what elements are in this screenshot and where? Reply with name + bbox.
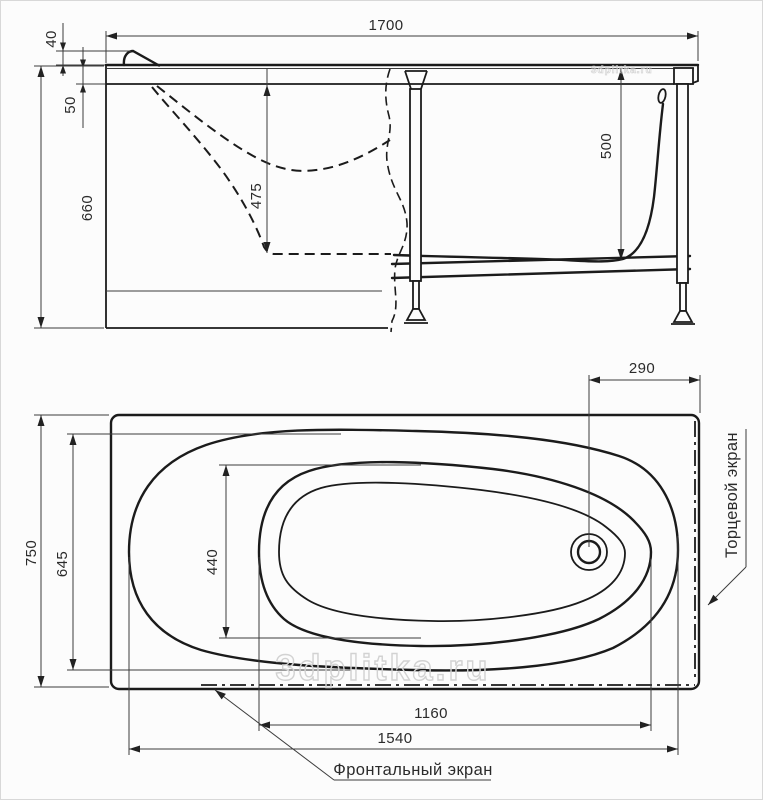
dim-height-total: 660 bbox=[79, 195, 96, 221]
dim-rim-height: 50 bbox=[62, 96, 79, 114]
dim-depth-end: 500 bbox=[598, 133, 615, 159]
dim-width-bottom: 440 bbox=[204, 549, 221, 575]
dim-depth-front: 475 bbox=[248, 183, 265, 209]
watermark-small: 3dplitka.ru bbox=[591, 65, 653, 76]
hidden-rim-curve-dashed bbox=[157, 86, 390, 171]
right-leg-bracket bbox=[674, 68, 693, 84]
dim-length-total: 1700 bbox=[369, 17, 404, 34]
dim-width-total: 750 bbox=[23, 540, 40, 566]
dim-length-bottom: 1160 bbox=[414, 705, 448, 722]
right-leg bbox=[671, 84, 695, 324]
screen-labels: Фронтальный экран Торцевой экран bbox=[215, 429, 746, 780]
hidden-bowl-wall-dashed bbox=[152, 87, 391, 254]
bathtub-technical-drawing: 1700 40 50 660 475 500 bbox=[0, 0, 763, 800]
dim-width-rim: 645 bbox=[54, 551, 71, 577]
drawing-svg: 1700 40 50 660 475 500 bbox=[1, 1, 763, 801]
dim-drain-to-edge: 290 bbox=[629, 360, 655, 377]
plan-view: 290 750 645 440 1160 1540 bbox=[23, 360, 746, 780]
headrest-profile bbox=[124, 51, 159, 66]
front-screen-label: Фронтальный экран bbox=[333, 761, 492, 779]
dim-headrest-height: 40 bbox=[43, 30, 60, 48]
left-leg bbox=[404, 71, 428, 323]
side-view: 1700 40 50 660 475 500 bbox=[34, 17, 698, 332]
end-screen-label: Торцевой экран bbox=[723, 432, 741, 558]
front-screen-leader bbox=[215, 690, 334, 780]
tub-bowl-floor bbox=[279, 483, 625, 621]
dim-length-rim: 1540 bbox=[378, 730, 413, 747]
apron-break-line bbox=[386, 69, 407, 332]
side-view-dimensions: 1700 40 50 660 475 500 bbox=[34, 17, 698, 328]
bowl-end-profile bbox=[394, 104, 663, 261]
end-screen-leader bbox=[708, 567, 746, 605]
overflow-hook bbox=[657, 88, 667, 103]
frame-rail-bottom bbox=[392, 269, 690, 278]
watermark: 3dplitka.ru bbox=[275, 647, 490, 688]
